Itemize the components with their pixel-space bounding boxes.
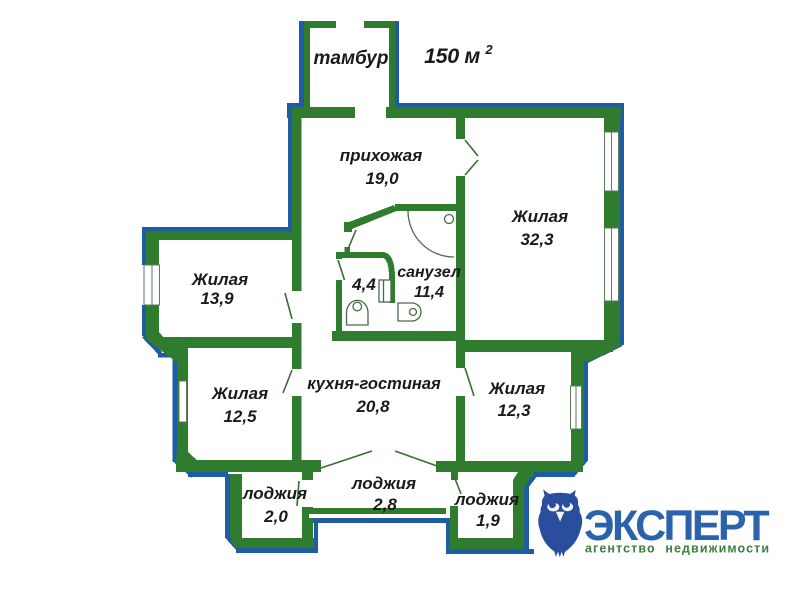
svg-text:кухня-гостиная: кухня-гостиная (307, 375, 441, 393)
svg-text:32,3: 32,3 (520, 230, 554, 249)
svg-text:2: 2 (484, 42, 493, 57)
svg-text:агентство недвижимости: агентство недвижимости (585, 542, 770, 556)
svg-text:12,5: 12,5 (223, 407, 257, 426)
svg-text:12,3: 12,3 (497, 401, 531, 420)
svg-text:13,9: 13,9 (200, 289, 234, 308)
svg-text:20,8: 20,8 (355, 397, 390, 416)
svg-text:Жилая: Жилая (211, 384, 268, 403)
svg-text:тамбур: тамбур (314, 48, 389, 69)
svg-text:11,4: 11,4 (414, 284, 444, 301)
svg-text:лоджия: лоджия (351, 474, 416, 493)
svg-text:лоджия: лоджия (454, 490, 519, 509)
svg-text:Жилая: Жилая (511, 207, 568, 226)
svg-text:2,8: 2,8 (372, 495, 397, 514)
svg-text:прихожая: прихожая (340, 146, 423, 165)
svg-text:2,0: 2,0 (263, 507, 288, 526)
svg-text:Жилая: Жилая (488, 379, 545, 398)
svg-text:санузел: санузел (397, 264, 461, 281)
svg-text:4,4: 4,4 (351, 275, 376, 294)
svg-text:150 м: 150 м (424, 44, 480, 68)
svg-text:лоджия: лоджия (242, 484, 307, 503)
svg-text:19,0: 19,0 (365, 169, 399, 188)
svg-text:1,9: 1,9 (476, 511, 500, 530)
svg-text:Жилая: Жилая (191, 270, 248, 289)
